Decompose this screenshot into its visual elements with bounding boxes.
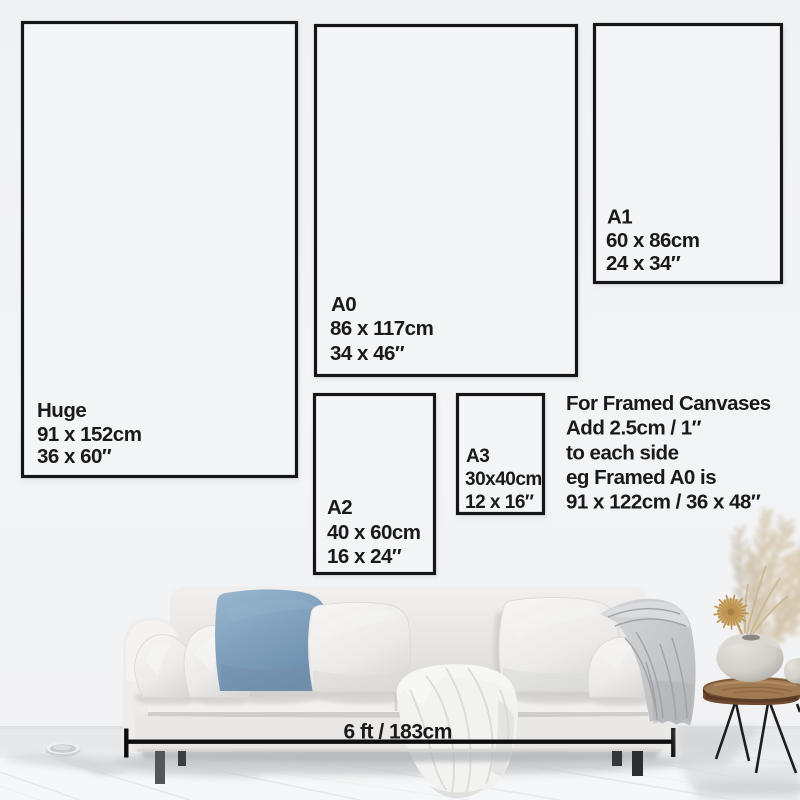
- svg-text:Add 2.5cm / 1″: Add 2.5cm / 1″: [566, 417, 702, 440]
- svg-text:For Framed Canvases: For Framed Canvases: [566, 392, 771, 415]
- svg-text:A0: A0: [331, 293, 356, 316]
- svg-text:A2: A2: [327, 496, 352, 519]
- svg-text:60 x 86cm: 60 x 86cm: [606, 229, 700, 252]
- svg-text:36 x 60″: 36 x 60″: [37, 445, 112, 468]
- svg-text:86 x 117cm: 86 x 117cm: [330, 317, 433, 340]
- svg-text:A1: A1: [607, 206, 632, 229]
- svg-text:12 x 16″: 12 x 16″: [465, 492, 534, 513]
- svg-text:24 x 34″: 24 x 34″: [606, 252, 681, 275]
- svg-text:91 x 152cm: 91 x 152cm: [37, 423, 141, 446]
- svg-text:40 x 60cm: 40 x 60cm: [327, 521, 421, 544]
- svg-text:34 x 46″: 34 x 46″: [330, 342, 405, 365]
- svg-text:30x40cm: 30x40cm: [465, 469, 542, 490]
- svg-text:6 ft / 183cm: 6 ft / 183cm: [344, 721, 452, 744]
- svg-text:91 x 122cm / 36 x 48″: 91 x 122cm / 36 x 48″: [566, 491, 761, 514]
- svg-text:Huge: Huge: [37, 399, 86, 422]
- svg-text:16 x 24″: 16 x 24″: [327, 545, 402, 568]
- svg-text:A3: A3: [466, 446, 489, 467]
- svg-text:to each side: to each side: [566, 442, 679, 465]
- svg-text:eg Framed A0 is: eg Framed A0 is: [566, 466, 716, 489]
